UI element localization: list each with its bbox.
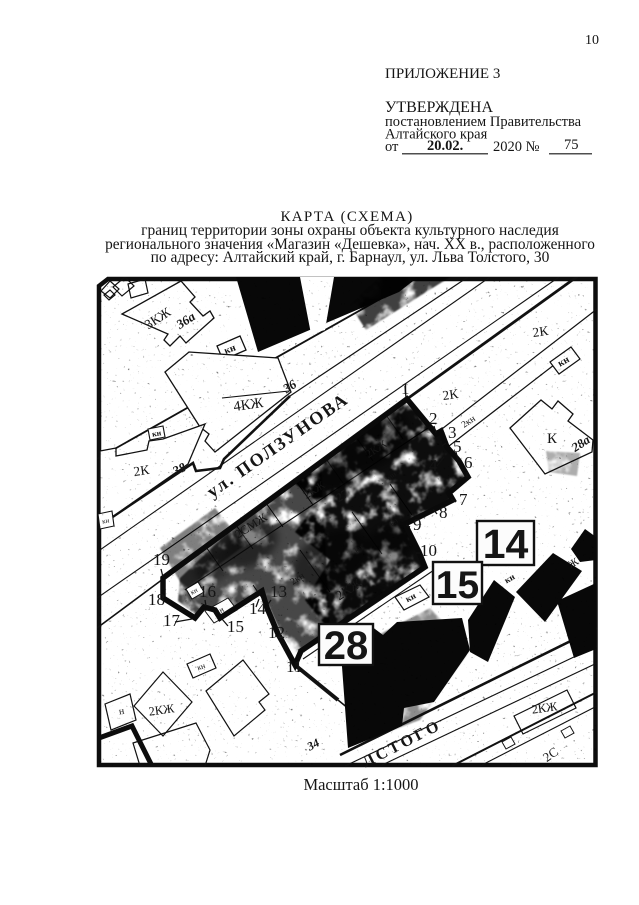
svg-text:9: 9 [413,515,422,534]
svg-text:75: 75 [564,137,579,153]
svg-text:16: 16 [199,582,216,601]
svg-text:19: 19 [153,550,170,569]
svg-text:12: 12 [268,623,285,642]
svg-text:по адресу: Алтайский край, г.: по адресу: Алтайский край, г. Барнаул, у… [151,249,550,266]
svg-text:15: 15 [436,564,479,607]
svg-text:5: 5 [453,437,462,456]
svg-text:7: 7 [459,490,468,509]
svg-text:10: 10 [420,541,437,560]
svg-text:17: 17 [163,611,181,630]
svg-text:14: 14 [483,521,529,567]
svg-text:15: 15 [227,617,244,636]
svg-text:8: 8 [439,503,448,522]
svg-text:18: 18 [148,590,165,609]
svg-text:Масштаб 1:1000: Масштаб 1:1000 [303,775,418,794]
svg-text:2: 2 [429,409,438,428]
svg-text:28: 28 [324,624,369,668]
svg-text:10: 10 [585,33,599,48]
svg-text:ПРИЛОЖЕНИЕ 3: ПРИЛОЖЕНИЕ 3 [385,66,500,82]
svg-text:от: от [385,139,399,155]
svg-text:6: 6 [464,453,473,472]
svg-text:11: 11 [286,657,302,676]
svg-text:2020 №: 2020 № [493,139,540,155]
svg-text:20.02.: 20.02. [427,138,463,154]
svg-text:13: 13 [270,582,287,601]
